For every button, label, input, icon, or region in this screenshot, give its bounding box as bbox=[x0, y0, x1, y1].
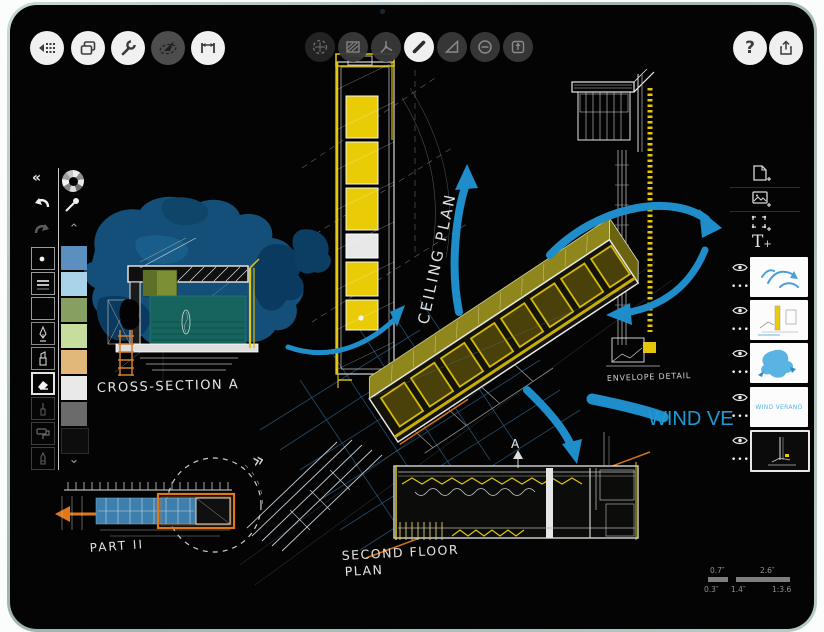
color-wheel-button[interactable] bbox=[62, 170, 84, 192]
layer1-visibility-toggle[interactable] bbox=[732, 262, 748, 273]
second-floor-plan-drawing: A bbox=[366, 432, 650, 558]
gallery-grid-button[interactable] bbox=[30, 31, 64, 65]
add-text-button[interactable]: T+ bbox=[752, 232, 772, 252]
help-button[interactable]: ? bbox=[733, 31, 767, 65]
help-icon: ? bbox=[745, 38, 755, 58]
palette-up-button[interactable]: ⌃ bbox=[61, 222, 87, 237]
fineliner-icon bbox=[38, 400, 48, 418]
add-page-icon bbox=[750, 164, 772, 184]
color-swatch-white[interactable] bbox=[61, 376, 87, 400]
color-swatch-olive[interactable] bbox=[61, 298, 87, 322]
erase-button[interactable] bbox=[470, 32, 500, 62]
scale-bar-small bbox=[708, 577, 728, 582]
layer4-visibility-toggle[interactable] bbox=[732, 392, 748, 403]
part2-label: PART II bbox=[89, 537, 144, 555]
tool-chisel-marker[interactable] bbox=[31, 347, 55, 370]
duplicate-button[interactable] bbox=[71, 31, 105, 65]
compass-button[interactable] bbox=[151, 31, 185, 65]
tool-brush-marker[interactable] bbox=[31, 447, 55, 470]
wrench-icon bbox=[119, 39, 137, 57]
chisel-marker-icon bbox=[37, 350, 49, 368]
dot-brush-icon bbox=[36, 252, 50, 266]
layer3-options-button[interactable]: ••• bbox=[731, 368, 750, 378]
shape-button[interactable] bbox=[437, 32, 467, 62]
scale-bottom-left: 0.3″ bbox=[704, 585, 719, 594]
export-arrow-icon bbox=[510, 39, 526, 55]
color-swatch-blue[interactable] bbox=[61, 246, 87, 270]
drawing-canvas[interactable]: CEILING PLAN bbox=[10, 5, 814, 629]
palette-down-button[interactable]: ⌄ bbox=[61, 452, 87, 467]
redo-icon bbox=[33, 222, 51, 238]
line-pen-icon bbox=[410, 38, 428, 56]
eye-icon bbox=[732, 392, 748, 403]
color-swatch-black[interactable] bbox=[61, 428, 89, 454]
paint-roller-icon bbox=[35, 426, 51, 442]
color-swatch-gray[interactable] bbox=[61, 402, 87, 426]
ipad-device-frame: CEILING PLAN bbox=[7, 2, 817, 632]
export-button[interactable] bbox=[503, 32, 533, 62]
eye-icon bbox=[732, 348, 748, 359]
scale-top-small: 0.7″ bbox=[710, 566, 725, 575]
page-background: CEILING PLAN bbox=[0, 0, 824, 632]
eye-icon bbox=[732, 262, 748, 273]
eyedropper-icon bbox=[63, 196, 81, 214]
tool-dot-brush[interactable] bbox=[31, 247, 55, 270]
layer2-visibility-toggle[interactable] bbox=[732, 305, 748, 316]
sidebar-divider bbox=[58, 168, 59, 470]
fill-button[interactable] bbox=[338, 32, 368, 62]
wind-ve-label: WIND VE bbox=[648, 408, 734, 430]
fountain-pen-icon bbox=[37, 325, 49, 343]
add-selection-icon bbox=[750, 214, 772, 232]
layer-thumbnail-detail-sketch[interactable] bbox=[750, 300, 808, 340]
grid-back-icon bbox=[38, 39, 56, 57]
duplicate-icon bbox=[79, 39, 97, 57]
triangle-icon bbox=[444, 39, 460, 55]
layer-thumbnail-blue-wash[interactable] bbox=[750, 343, 808, 383]
second-floor-label-1: SECOND FLOOR bbox=[341, 542, 459, 563]
measure-icon bbox=[199, 39, 217, 57]
eye-icon bbox=[732, 305, 748, 316]
layer5-visibility-toggle[interactable] bbox=[732, 435, 748, 446]
layer1-options-button[interactable]: ••• bbox=[731, 282, 750, 292]
layer4-options-button[interactable]: ••• bbox=[731, 412, 750, 422]
tool-fountain-pen[interactable] bbox=[31, 322, 55, 345]
cross-section-label: CROSS-SECTION A bbox=[97, 377, 240, 396]
eraser-icon bbox=[35, 377, 51, 391]
text-tool-icon: T bbox=[752, 232, 763, 252]
undo-icon bbox=[33, 196, 51, 212]
transform-icon bbox=[311, 38, 329, 56]
compass-icon bbox=[158, 38, 178, 58]
scale-bar-large bbox=[736, 577, 790, 582]
minus-circle-icon bbox=[477, 39, 493, 55]
tool-eraser-selected[interactable] bbox=[31, 372, 55, 395]
share-icon bbox=[777, 39, 795, 57]
tool-paint-roller[interactable] bbox=[31, 422, 55, 445]
add-image-button[interactable] bbox=[750, 190, 772, 208]
pen-button[interactable] bbox=[404, 32, 434, 62]
layer2-options-button[interactable]: ••• bbox=[731, 325, 750, 335]
tool-empty-slot[interactable] bbox=[31, 297, 55, 320]
color-swatch-lightblue[interactable] bbox=[61, 272, 87, 296]
scale-top-large: 2.6″ bbox=[760, 566, 775, 575]
layer-thumbnail-dark-sketch[interactable] bbox=[750, 430, 810, 472]
eye-icon bbox=[732, 435, 748, 446]
add-image-icon bbox=[750, 190, 772, 208]
wind-verano-thumb-text: WIND VERANO bbox=[755, 404, 802, 411]
layer-thumbnail-wind-verano[interactable]: WIND VERANO bbox=[750, 387, 808, 427]
layer-thumbnail-blue-arrows[interactable] bbox=[750, 257, 808, 297]
part2-drawing bbox=[55, 458, 262, 552]
color-swatch-tan[interactable] bbox=[61, 350, 87, 374]
scale-bottom-mid: 1.4″ bbox=[731, 585, 746, 594]
second-floor-label-2: PLAN bbox=[344, 562, 383, 579]
collapse-sidebar-button[interactable]: « bbox=[32, 170, 40, 186]
scale-ratio: 1:3.6 bbox=[772, 585, 791, 594]
ipad-screen: CEILING PLAN bbox=[10, 5, 814, 629]
ruled-lines-icon bbox=[35, 277, 51, 291]
scale-readout: 0.7″ 2.6″ 0.3″ 1.4″ 1:3.6 bbox=[698, 566, 810, 596]
measure-button[interactable] bbox=[191, 31, 225, 65]
front-camera bbox=[380, 9, 385, 14]
layer3-visibility-toggle[interactable] bbox=[732, 348, 748, 359]
double-chevron-mark: » bbox=[249, 447, 267, 473]
svg-text:A: A bbox=[511, 437, 520, 451]
guides-button[interactable] bbox=[371, 32, 401, 62]
axis-icon bbox=[378, 39, 394, 55]
tool-ruled-lines[interactable] bbox=[31, 272, 55, 295]
eyedropper-button[interactable] bbox=[63, 196, 81, 214]
brush-marker-icon bbox=[37, 450, 49, 468]
color-swatch-lightgreen[interactable] bbox=[61, 324, 87, 348]
envelope-detail-label: ENVELOPE DETAIL bbox=[607, 371, 691, 383]
transform-button[interactable] bbox=[305, 32, 335, 62]
hatch-fill-icon bbox=[345, 39, 361, 55]
tool-fineliner[interactable] bbox=[31, 397, 55, 420]
undo-button[interactable] bbox=[33, 196, 51, 212]
settings-button[interactable] bbox=[111, 31, 145, 65]
add-selection-button[interactable] bbox=[750, 214, 772, 232]
layer5-options-button[interactable]: ••• bbox=[731, 455, 750, 465]
redo-button[interactable] bbox=[33, 222, 51, 238]
share-button[interactable] bbox=[769, 31, 803, 65]
staircase-lines bbox=[247, 440, 382, 551]
add-page-button[interactable] bbox=[750, 164, 772, 184]
